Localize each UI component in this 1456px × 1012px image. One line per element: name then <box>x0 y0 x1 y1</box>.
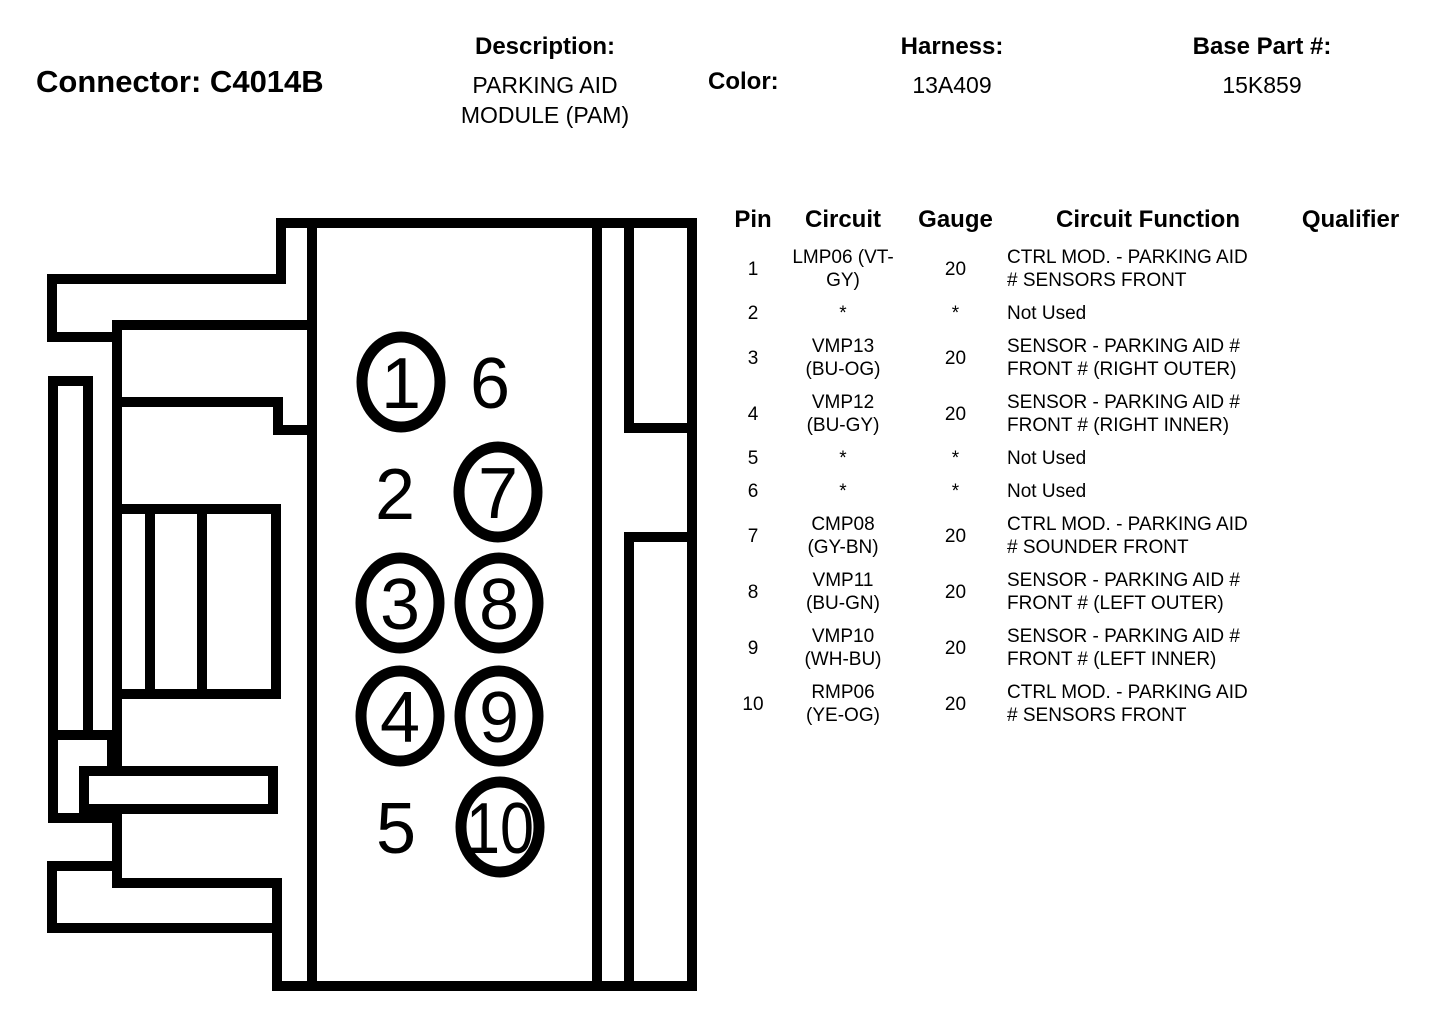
pin-1-label: 1 <box>381 344 421 424</box>
pin-7: 7 <box>459 447 537 537</box>
base-part-value: 15K859 <box>1142 70 1382 100</box>
function-cell: SENSOR - PARKING AID # FRONT # (RIGHT OU… <box>1003 335 1293 381</box>
table-row: 5 * * Not Used <box>728 447 1418 470</box>
function-cell: SENSOR - PARKING AID # FRONT # (LEFT OUT… <box>1003 569 1293 615</box>
circuit-cell: * <box>778 447 908 470</box>
circuit-cell: CMP08 (GY-BN) <box>778 513 908 559</box>
header-pin: Pin <box>728 206 778 234</box>
function-cell: Not Used <box>1003 302 1293 325</box>
table-row: 6 * * Not Used <box>728 480 1418 503</box>
gauge-cell: * <box>908 447 1003 470</box>
pin-6: 6 <box>470 344 510 424</box>
pin-9: 9 <box>460 671 538 761</box>
base-part-label: Base Part #: <box>1142 33 1382 61</box>
pin-10-label: 10 <box>466 789 534 869</box>
circuit-cell: LMP06 (VT- GY) <box>778 246 908 292</box>
pin-3-label: 3 <box>380 565 420 645</box>
pin-cell: 2 <box>728 302 778 325</box>
gauge-cell: 20 <box>908 693 1003 716</box>
harness-value: 13A409 <box>852 70 1052 100</box>
pin-4: 4 <box>361 671 439 761</box>
circuit-cell: * <box>778 480 908 503</box>
circuit-cell: VMP12 (BU-GY) <box>778 391 908 437</box>
connector-body <box>312 223 597 986</box>
table-row: 10 RMP06 (YE-OG) 20 CTRL MOD. - PARKING … <box>728 681 1418 727</box>
function-cell: SENSOR - PARKING AID # FRONT # (LEFT INN… <box>1003 625 1293 671</box>
connector-right-column <box>597 223 692 986</box>
pin-7-label: 7 <box>478 454 518 534</box>
pin-cell: 4 <box>728 403 778 426</box>
gauge-cell: 20 <box>908 581 1003 604</box>
pin-5-label: 5 <box>376 789 416 869</box>
pin-2-label: 2 <box>375 455 415 535</box>
connector-diagram: 1 6 2 7 3 8 4 <box>0 0 720 1012</box>
pin-1: 1 <box>362 337 440 427</box>
gauge-cell: 20 <box>908 637 1003 660</box>
circuit-cell: VMP13 (BU-OG) <box>778 335 908 381</box>
circuit-cell: VMP10 (WH-BU) <box>778 625 908 671</box>
gauge-cell: 20 <box>908 258 1003 281</box>
harness-block: Harness: 13A409 <box>852 33 1052 100</box>
table-row: 8 VMP11 (BU-GN) 20 SENSOR - PARKING AID … <box>728 569 1418 615</box>
function-cell: Not Used <box>1003 447 1293 470</box>
connector-bar-c <box>84 771 273 809</box>
pin-8-label: 8 <box>479 565 519 645</box>
pin-cell: 6 <box>728 480 778 503</box>
connector-sheet: Connector: C4014B Description: PARKING A… <box>0 0 1456 1012</box>
function-cell: CTRL MOD. - PARKING AID # SOUNDER FRONT <box>1003 513 1293 559</box>
table-row: 4 VMP12 (BU-GY) 20 SENSOR - PARKING AID … <box>728 391 1418 437</box>
pinout-table: Pin Circuit Gauge Circuit Function Quali… <box>728 206 1418 737</box>
function-cell: Not Used <box>1003 480 1293 503</box>
pin-10: 10 <box>461 782 539 872</box>
function-cell: CTRL MOD. - PARKING AID # SENSORS FRONT <box>1003 681 1293 727</box>
pin-6-label: 6 <box>470 344 510 424</box>
circuit-cell: VMP11 (BU-GN) <box>778 569 908 615</box>
pin-3: 3 <box>361 558 439 648</box>
connector-bar-b <box>117 325 312 430</box>
table-row: 1 LMP06 (VT- GY) 20 CTRL MOD. - PARKING … <box>728 246 1418 292</box>
function-cell: CTRL MOD. - PARKING AID # SENSORS FRONT <box>1003 246 1293 292</box>
pin-cell: 9 <box>728 637 778 660</box>
gauge-cell: * <box>908 480 1003 503</box>
connector-right-notches <box>629 223 690 986</box>
pin-cell: 1 <box>728 258 778 281</box>
pin-4-label: 4 <box>380 678 420 758</box>
pin-9-label: 9 <box>479 678 519 758</box>
gauge-cell: 20 <box>908 525 1003 548</box>
pin-cell: 3 <box>728 347 778 370</box>
table-row: 2 * * Not Used <box>728 302 1418 325</box>
pin-8: 8 <box>460 558 538 648</box>
connector-grid-box <box>117 509 276 694</box>
header-qualifier: Qualifier <box>1293 206 1408 234</box>
table-row: 7 CMP08 (GY-BN) 20 CTRL MOD. - PARKING A… <box>728 513 1418 559</box>
header-circuit-function: Circuit Function <box>1003 206 1293 234</box>
header-gauge: Gauge <box>908 206 1003 234</box>
harness-label: Harness: <box>852 33 1052 61</box>
color-block: Color: <box>708 68 789 96</box>
pin-2: 2 <box>375 455 415 535</box>
pin-cell: 7 <box>728 525 778 548</box>
function-cell: SENSOR - PARKING AID # FRONT # (RIGHT IN… <box>1003 391 1293 437</box>
pin-cell: 10 <box>728 693 778 716</box>
connector-left-column <box>53 381 112 818</box>
pin-5: 5 <box>376 789 416 869</box>
gauge-cell: 20 <box>908 347 1003 370</box>
circuit-cell: * <box>778 302 908 325</box>
pin-cell: 5 <box>728 447 778 470</box>
gauge-cell: * <box>908 302 1003 325</box>
header-circuit: Circuit <box>778 206 908 234</box>
table-row: 9 VMP10 (WH-BU) 20 SENSOR - PARKING AID … <box>728 625 1418 671</box>
table-row: 3 VMP13 (BU-OG) 20 SENSOR - PARKING AID … <box>728 335 1418 381</box>
gauge-cell: 20 <box>908 403 1003 426</box>
base-part-block: Base Part #: 15K859 <box>1142 33 1382 100</box>
pinout-table-header: Pin Circuit Gauge Circuit Function Quali… <box>728 206 1418 234</box>
circuit-cell: RMP06 (YE-OG) <box>778 681 908 727</box>
connector-bar-d <box>52 866 277 928</box>
pin-cell: 8 <box>728 581 778 604</box>
